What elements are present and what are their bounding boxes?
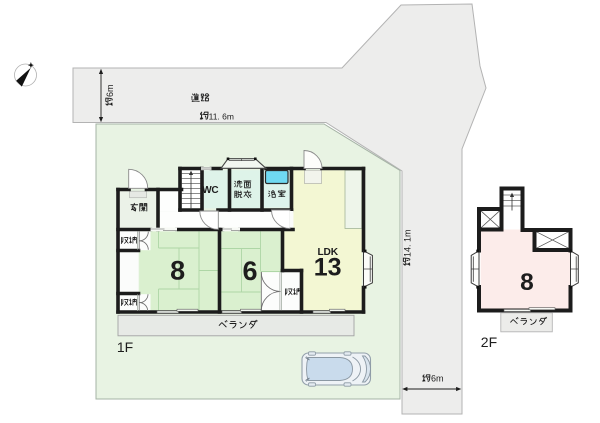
svg-text:13: 13 <box>314 254 342 282</box>
svg-text:6m: 6m <box>105 84 115 97</box>
svg-text:11. 6m: 11. 6m <box>209 111 234 121</box>
svg-text:6m: 6m <box>431 374 444 384</box>
svg-text:1F: 1F <box>117 339 133 355</box>
svg-text:2F: 2F <box>481 334 497 350</box>
svg-text:8: 8 <box>520 269 534 296</box>
svg-text:14. 1m: 14. 1m <box>403 229 413 257</box>
svg-text:WC: WC <box>202 185 218 196</box>
svg-text:8: 8 <box>170 256 185 286</box>
svg-text:6: 6 <box>242 256 257 286</box>
